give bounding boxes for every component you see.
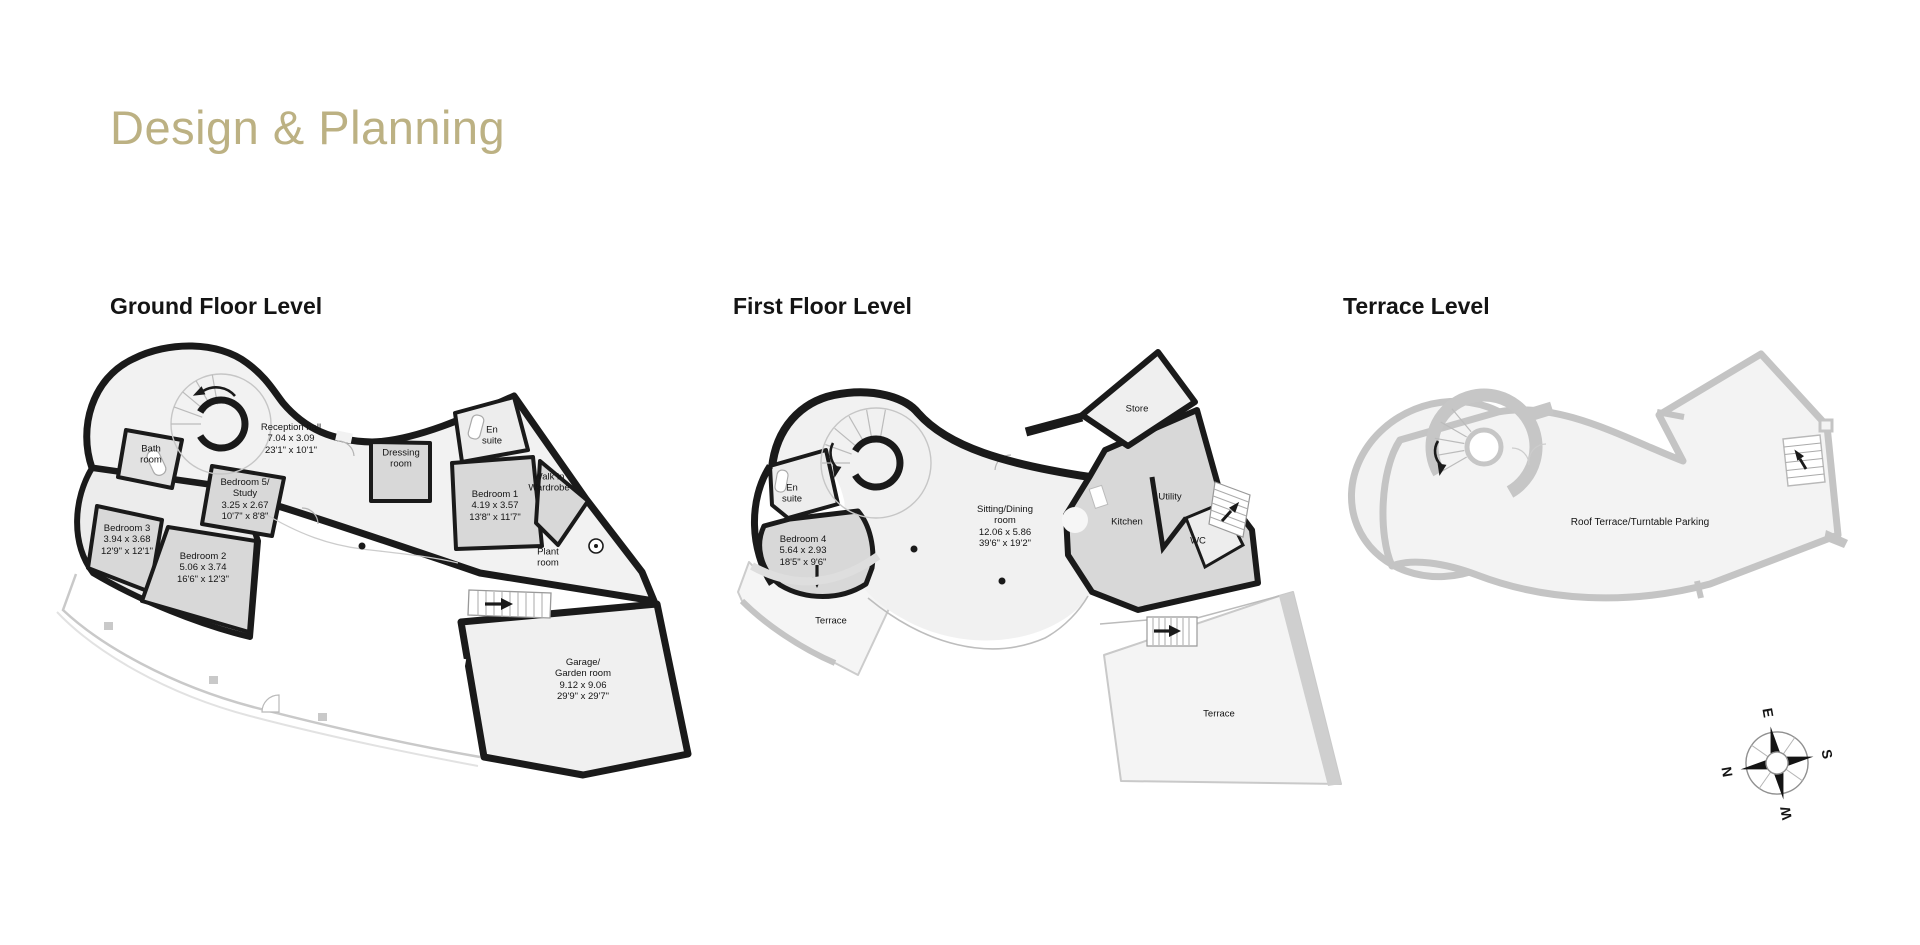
room-label-bedroom5-study: Bedroom 5/ Study 3.25 x 2.67 10'7" x 8'8… bbox=[220, 477, 269, 523]
room-label-walk-in-wardrobe: Walk in Wardrobe bbox=[528, 472, 569, 495]
first-floor-plan-drawing bbox=[730, 340, 1350, 810]
column-dot bbox=[359, 543, 366, 550]
kitchen-counter-icon bbox=[1062, 507, 1088, 533]
room-label-sitting-dining-room: Sitting/Dining room 12.06 x 5.86 39'6" x… bbox=[977, 504, 1033, 550]
room-label-ensuite-ground: En suite bbox=[482, 425, 502, 448]
compass-label-n: N bbox=[1718, 765, 1736, 778]
room-label-kitchen: Kitchen bbox=[1111, 516, 1143, 527]
first-floor-heading: First Floor Level bbox=[733, 293, 912, 320]
compass-label-w: W bbox=[1777, 805, 1795, 822]
column-dot bbox=[999, 578, 1006, 585]
room-label-garage-garden-room: Garage/ Garden room 9.12 x 9.06 29'9" x … bbox=[555, 657, 611, 703]
terrace-level-heading: Terrace Level bbox=[1343, 293, 1490, 320]
ground-floor-plan-drawing bbox=[40, 340, 720, 810]
room-label-bedroom1: Bedroom 1 4.19 x 3.57 13'8" x 11'7" bbox=[469, 489, 520, 523]
room-label-wc: WC bbox=[1190, 535, 1206, 546]
room-label-terrace-left: Terrace bbox=[815, 615, 847, 626]
boiler-icon bbox=[589, 539, 603, 553]
room-label-bath-room: Bath room bbox=[140, 444, 162, 467]
compass-label-e: E bbox=[1759, 707, 1776, 719]
kitchen-wing bbox=[1062, 410, 1258, 610]
compass-label-s: S bbox=[1819, 748, 1836, 760]
room-label-bedroom2: Bedroom 2 5.06 x 3.74 16'6" x 12'3" bbox=[177, 551, 229, 585]
brochure-page: Design & Planning Ground Floor Level Fir… bbox=[0, 0, 1920, 945]
garage-stairs bbox=[468, 590, 551, 618]
room-label-dressing-room: Dressing room bbox=[382, 448, 420, 471]
room-label-ensuite-first: En suite bbox=[782, 483, 802, 506]
room-label-bedroom3: Bedroom 3 3.94 x 3.68 12'9" x 12'1" bbox=[101, 523, 153, 557]
wall-stub bbox=[1697, 581, 1701, 598]
room-label-reception-hall: Reception hall 7.04 x 3.09 23'1" x 10'1" bbox=[261, 422, 321, 456]
terrace-stairs bbox=[1783, 435, 1825, 486]
room-label-terrace-lower: Terrace bbox=[1203, 708, 1235, 719]
compass-rose: E S W N bbox=[1707, 693, 1847, 833]
room-label-store: Store bbox=[1126, 403, 1149, 414]
room-label-bedroom4: Bedroom 4 5.64 x 2.93 18'5" x 9'6" bbox=[779, 534, 826, 568]
terrace-stairs bbox=[1147, 617, 1197, 646]
wall-bump bbox=[1820, 420, 1832, 431]
first-floor-lower-terrace bbox=[1100, 592, 1341, 786]
compass-hub bbox=[1764, 750, 1789, 775]
room-label-plant-room: Plant room bbox=[537, 547, 559, 570]
terrace-level-plan-drawing bbox=[1340, 340, 1860, 620]
ground-floor-heading: Ground Floor Level bbox=[110, 293, 322, 320]
column-dot bbox=[911, 546, 918, 553]
terrace-band bbox=[1383, 354, 1838, 598]
page-title: Design & Planning bbox=[110, 100, 505, 155]
room-label-roof-terrace-parking: Roof Terrace/Turntable Parking bbox=[1571, 517, 1709, 529]
room-label-utility: Utility bbox=[1158, 491, 1181, 502]
site-boundary-lines bbox=[57, 574, 480, 766]
